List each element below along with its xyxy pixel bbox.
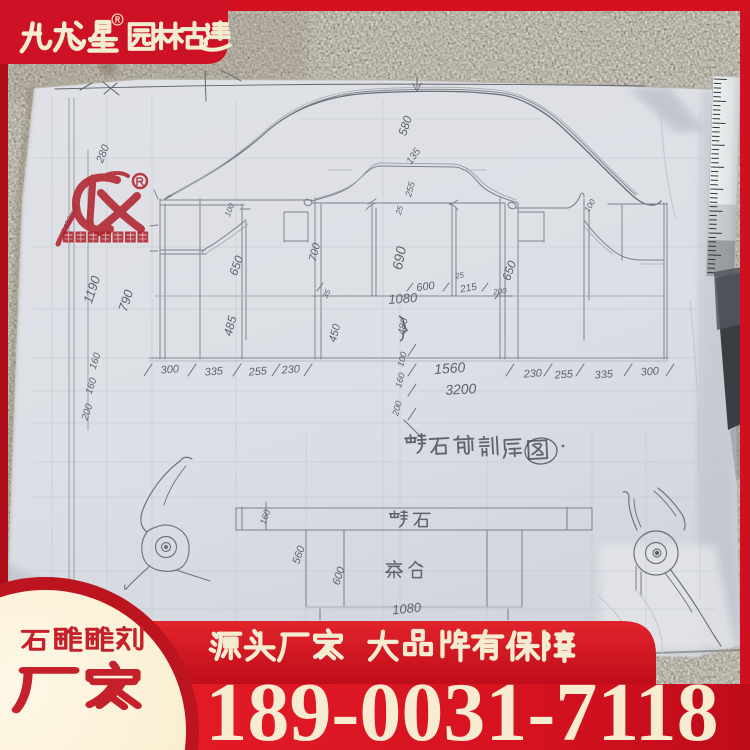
svg-text:230: 230: [280, 363, 301, 376]
svg-text:255: 255: [553, 368, 574, 381]
svg-text:300: 300: [640, 365, 660, 378]
svg-text:335: 335: [594, 368, 614, 381]
svg-text:335: 335: [204, 365, 224, 378]
svg-text:200: 200: [492, 286, 508, 296]
svg-text:1080: 1080: [388, 290, 419, 307]
svg-text:230: 230: [522, 367, 543, 380]
svg-text:1080: 1080: [391, 599, 422, 617]
svg-text:255: 255: [247, 365, 268, 378]
svg-text:1560: 1560: [434, 359, 466, 377]
svg-text:3200: 3200: [445, 380, 477, 398]
svg-text:300: 300: [160, 363, 180, 376]
svg-text:189-0031-7118: 189-0031-7118: [205, 666, 718, 750]
